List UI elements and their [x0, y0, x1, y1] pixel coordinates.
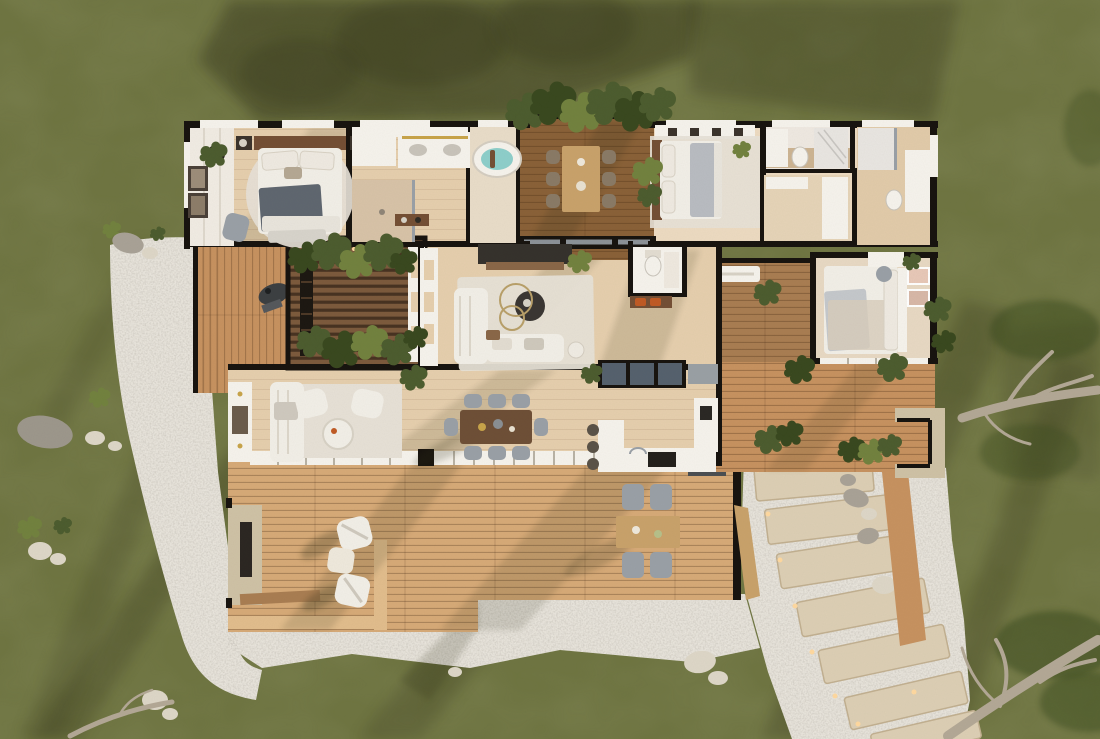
film-grain	[0, 0, 1100, 739]
floor-plan-render	[0, 0, 1100, 739]
